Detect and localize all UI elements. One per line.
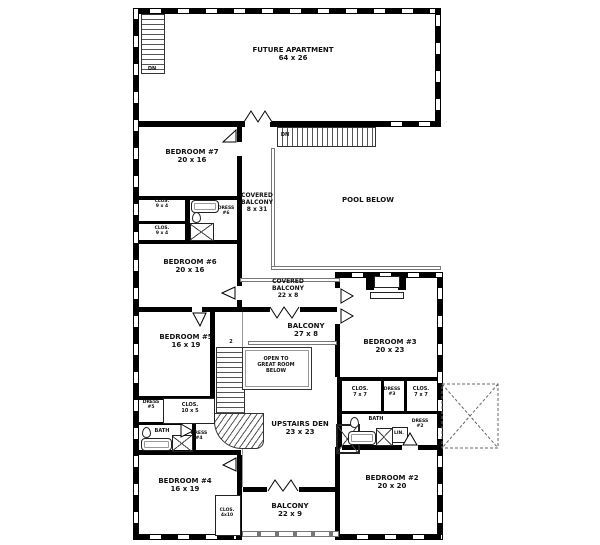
label-bedroom-7: BEDROOM #720 x 16 xyxy=(165,148,218,165)
floor-plan: FUTURE APARTMENT64 x 26 DN DN BEDROOM #7… xyxy=(0,0,600,545)
label-linen: LIN. xyxy=(394,431,404,436)
wall-segment xyxy=(139,221,185,224)
label-dn-lower: DN xyxy=(281,132,289,138)
bedroom3-fireplace-icon xyxy=(374,276,400,288)
label-bedroom-3: BEDROOM #320 x 23 xyxy=(363,338,416,355)
french-door-icon xyxy=(269,306,300,319)
bay-roof-outline xyxy=(441,383,499,449)
label-closet-9x4-a: CLOS.9 x 4 xyxy=(155,199,170,210)
label-closet-4x10: CLOS.4x10 xyxy=(220,508,235,519)
wall-left-exterior xyxy=(133,8,139,540)
wall-apartment-right xyxy=(435,8,441,127)
label-closet-9x4-b: CLOS.9 x 4 xyxy=(155,226,170,237)
wall-segment xyxy=(374,121,441,127)
door-swing-icon xyxy=(192,312,207,327)
shower-icon xyxy=(376,428,393,446)
wall-segment xyxy=(139,240,237,244)
door-swing-icon xyxy=(222,457,237,472)
label-future-apartment: FUTURE APARTMENT64 x 26 xyxy=(252,46,333,63)
stairs-apartment xyxy=(141,14,165,74)
label-dress-4: DRESS#4 xyxy=(191,431,208,442)
label-closet-10x5: CLOS.10 x 5 xyxy=(181,402,198,414)
fireplace-jamb-icon xyxy=(366,274,374,290)
door-swing-icon xyxy=(402,432,418,446)
wall-segment xyxy=(139,307,192,312)
label-bath-left: BATH xyxy=(155,428,170,434)
label-upstairs-den: UPSTAIRS DEN23 x 23 xyxy=(271,420,328,437)
label-bedroom-4: BEDROOM #416 x 19 xyxy=(158,477,211,494)
label-dress-5: DRESS#5 xyxy=(143,400,160,411)
label-dress-3: DRESS#3 xyxy=(384,387,401,398)
label-bedroom-5: BEDROOM #516 x 19 xyxy=(159,333,212,350)
wall-bedroom2-bottom xyxy=(340,534,443,540)
balcony22-railing-posts xyxy=(242,531,339,537)
wall-segment xyxy=(404,381,407,411)
wall-segment xyxy=(243,487,267,492)
wall-segment xyxy=(299,487,337,492)
wall-segment xyxy=(342,377,437,381)
label-dress-2: DRESS#2 xyxy=(412,419,429,430)
wall-segment xyxy=(237,127,242,142)
label-bath-right: BATH xyxy=(369,416,384,422)
toilet-icon xyxy=(350,417,359,428)
stairs-main-curved-flare xyxy=(214,413,264,449)
wall-segment xyxy=(202,307,240,312)
label-dress-6: DRESS#6 xyxy=(218,206,235,217)
door-swing-icon xyxy=(221,286,236,300)
label-dn-upper: DN xyxy=(148,66,156,72)
wall-apartment-top xyxy=(133,8,441,14)
label-closet-7x7-a: CLOS.7 x 7 xyxy=(352,386,368,398)
bathtub-icon xyxy=(348,431,376,445)
door-swing-icon xyxy=(340,288,354,304)
label-open-to-great-room: OPEN TOGREAT ROOMBELOW xyxy=(257,356,294,374)
wall-segment xyxy=(237,156,242,196)
label-covered-balcony-22x8: COVEREDBALCONY22 x 8 xyxy=(272,278,304,300)
toilet-icon xyxy=(142,427,151,438)
wall-segment xyxy=(335,447,340,540)
french-door-icon xyxy=(267,479,299,492)
label-balcony-22x9: BALCONY22 x 9 xyxy=(271,502,308,519)
wall-segment xyxy=(335,324,340,377)
door-swing-icon xyxy=(222,129,237,143)
wall-segment xyxy=(342,411,437,414)
toilet-icon xyxy=(192,212,201,223)
balcony27-railing xyxy=(248,341,337,345)
label-covered-balcony-8x31: COVEREDBALCONY8 x 31 xyxy=(241,192,273,214)
label-pool-below: POOL BELOW xyxy=(342,196,394,204)
shower-icon xyxy=(190,223,214,241)
wall-segment xyxy=(139,121,245,127)
pool-railing-horizontal xyxy=(271,266,441,270)
wall-segment xyxy=(240,307,270,312)
label-balcony-27x8: BALCONY27 x 8 xyxy=(287,322,324,339)
wall-segment xyxy=(418,445,437,450)
stairs-main xyxy=(216,347,245,415)
label-bedroom-2: BEDROOM #220 x 20 xyxy=(365,474,418,491)
fireplace-hearth-icon xyxy=(370,292,404,299)
bathtub-icon xyxy=(141,438,172,451)
label-bedroom-6: BEDROOM #620 x 16 xyxy=(163,258,216,275)
french-door-icon xyxy=(243,110,273,123)
label-stair-flight-number: 2 xyxy=(229,339,232,345)
door-swing-icon xyxy=(340,308,354,324)
stairs-to-apartment xyxy=(277,127,376,147)
wall-segment xyxy=(210,312,215,396)
label-closet-7x7-b: CLOS.7 x 7 xyxy=(413,386,429,398)
wall-segment xyxy=(300,307,337,312)
